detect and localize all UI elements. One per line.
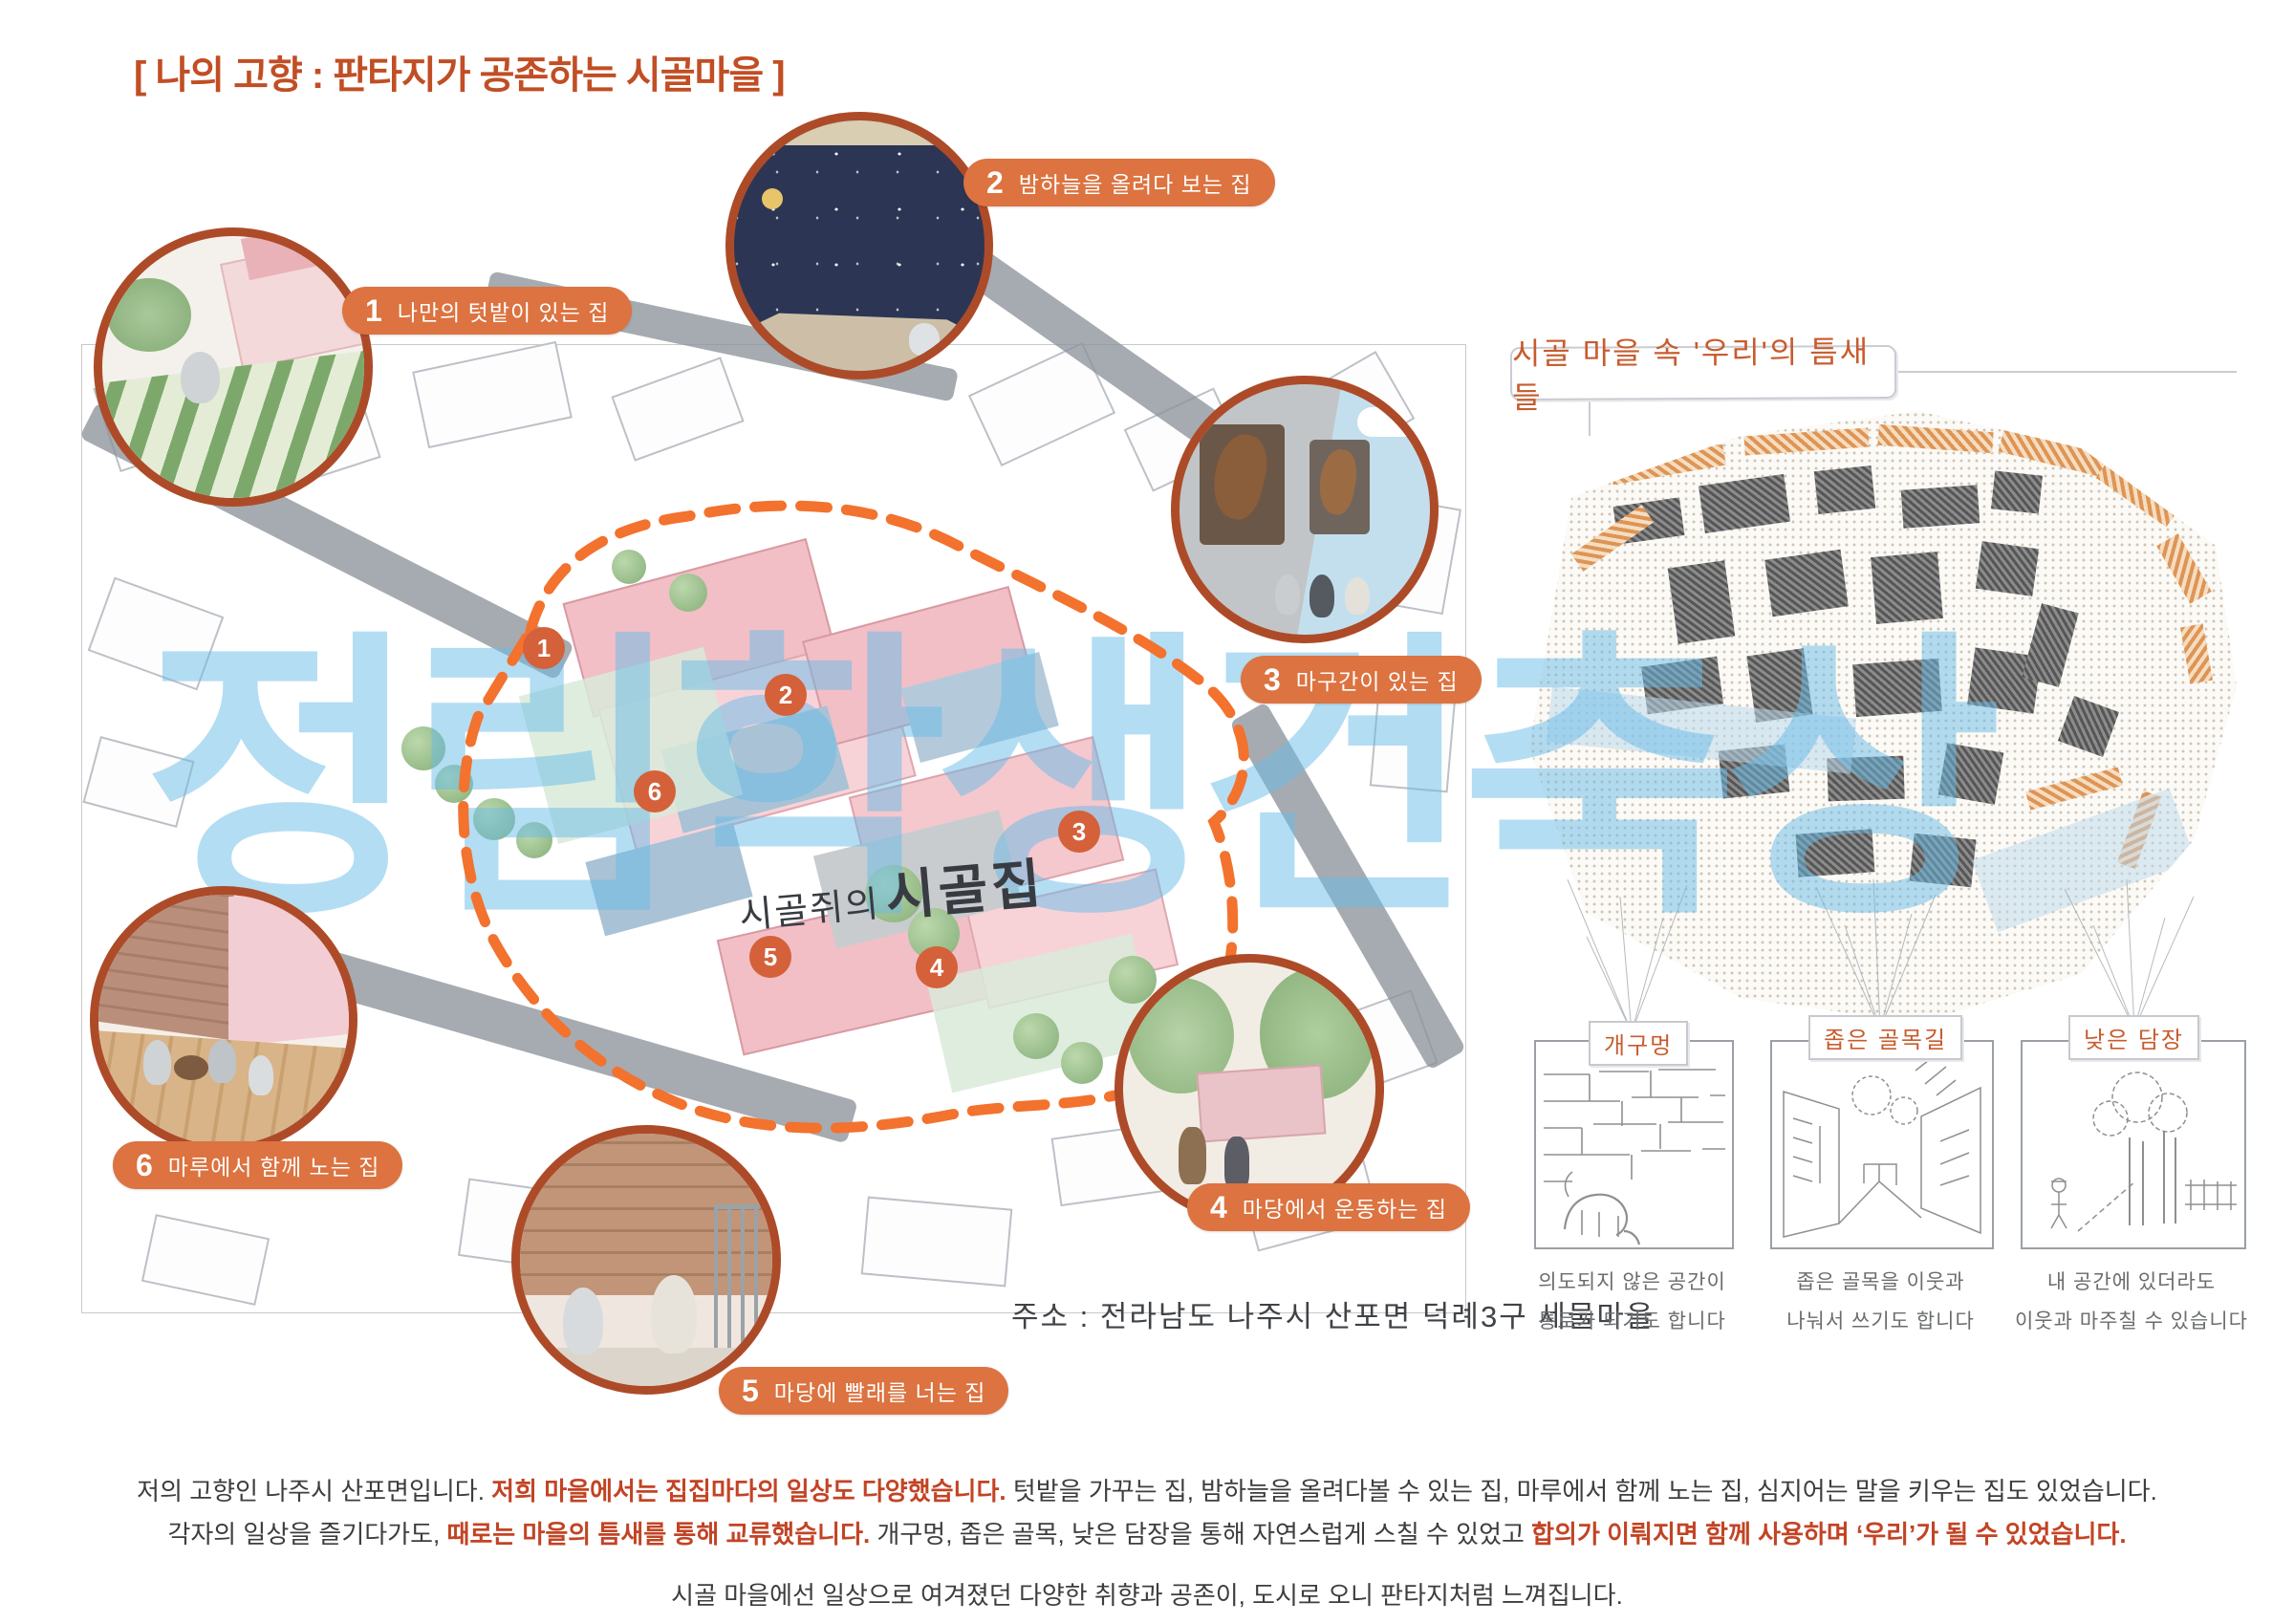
footer-text: 저의 고향인 나주시 산포면입니다. <box>137 1477 491 1505</box>
house-label-3: 3 마구간이 있는 집 <box>1241 656 1482 704</box>
plan-building <box>1699 474 1790 533</box>
house-number: 6 <box>136 1148 153 1183</box>
vignette-mouse <box>181 352 220 404</box>
tree <box>1061 1042 1103 1084</box>
tree <box>1013 1013 1059 1059</box>
vignette-laundry-house <box>511 1125 781 1395</box>
vignette-figure <box>1179 1127 1206 1185</box>
plan-building <box>1871 552 1943 624</box>
plan-building <box>1668 560 1736 644</box>
vignette-crop-rows <box>94 348 373 507</box>
house-label-4: 4 마당에서 운동하는 집 <box>1187 1183 1470 1231</box>
low-wall-sketch-drawing <box>2023 1042 2244 1247</box>
sketch-dog-hole <box>1534 1040 1734 1249</box>
footer-line-1: 저의 고향인 나주시 산포면입니다. 저희 마을에서는 집집마다의 일상도 다양… <box>0 1470 2294 1513</box>
caption-line: 나눠서 쓰기도 합니다 <box>1768 1303 1993 1342</box>
footer-text: 각자의 일상을 즐기다가도, <box>167 1520 446 1548</box>
vignette-maru-house <box>90 886 357 1154</box>
plan-gap-orange <box>1999 429 2107 477</box>
vignette-mouse <box>651 1275 697 1353</box>
sketch-narrow-alley <box>1770 1040 1994 1249</box>
map-marker-2: 2 <box>765 674 807 716</box>
plan-building <box>1814 466 1875 514</box>
plan-gap-orange <box>1877 424 1993 453</box>
sketch-caption-dog-hole: 의도되지 않은 공간이 통로가 되기도 합니다 <box>1520 1264 1744 1342</box>
village-name-big: 시골집 <box>883 853 1047 926</box>
tree <box>516 822 552 858</box>
house-name: 마당에 빨래를 너는 집 <box>774 1375 986 1407</box>
vignette-mouse <box>249 1055 273 1095</box>
plan-gap-orange <box>2180 623 2213 683</box>
sketch-caption-low-wall: 내 공간에 있더라도 이웃과 마주칠 수 있습니다 <box>2002 1264 2261 1342</box>
house-number: 3 <box>1264 662 1281 698</box>
house-name: 밤하늘을 올려다 보는 집 <box>1019 166 1252 199</box>
sketch-label-dog-hole: 개구멍 <box>1589 1021 1688 1066</box>
vignette-garden-house <box>94 227 373 507</box>
village-name-small: 시골쥐의 <box>738 884 882 937</box>
right-panel-title: 시골 마을 속 '우리'의 틈새들 <box>1510 345 1896 401</box>
house-number: 2 <box>986 165 1004 201</box>
vignette-mouse <box>563 1288 603 1355</box>
tree <box>473 798 515 840</box>
vignette-table <box>174 1055 209 1080</box>
map-marker-4: 4 <box>916 946 958 988</box>
house-number: 5 <box>742 1374 759 1409</box>
vignette-pink-wall <box>228 886 357 1047</box>
tree <box>401 726 445 770</box>
map-marker-3: 3 <box>1058 811 1100 853</box>
house-number: 1 <box>365 293 382 329</box>
caption-line: 내 공간에 있더라도 <box>2002 1264 2261 1303</box>
house-label-1: 1 나만의 텃밭이 있는 집 <box>342 287 632 335</box>
caption-line: 이웃과 마주칠 수 있습니다 <box>2002 1303 2261 1342</box>
plan-gap-orange <box>2025 767 2123 810</box>
vignette-mouse <box>909 323 939 356</box>
plan-to-sketch-connectors <box>1529 879 2256 1032</box>
sketch-label-low-wall: 낮은 담장 <box>2068 1015 2199 1060</box>
vignette-mouse <box>1275 574 1300 615</box>
plan-gap-orange <box>2096 458 2181 528</box>
footer-highlight: 저희 마을에서는 집집마다의 일상도 다양했습니다. <box>491 1477 1006 1505</box>
vignette-brick-wall <box>90 886 233 1040</box>
house-name: 마당에서 운동하는 집 <box>1243 1191 1447 1223</box>
vignette-bush <box>107 278 191 352</box>
tree <box>435 765 473 803</box>
plan-building <box>1796 829 1875 877</box>
footer-description: 저의 고향인 나주시 산포면입니다. 저희 마을에서는 집집마다의 일상도 다양… <box>0 1470 2294 1617</box>
caption-line: 통로가 되기도 합니다 <box>1520 1303 1744 1342</box>
narrow-alley-sketch-drawing <box>1772 1042 1992 1247</box>
vignette-balcony-rail <box>714 1204 760 1355</box>
house-name: 나만의 텃밭이 있는 집 <box>398 294 610 327</box>
plan-building <box>1764 550 1849 617</box>
vignette-mouse <box>208 1040 236 1083</box>
map-marker-6: 6 <box>634 770 676 812</box>
vignette-eave <box>734 120 985 145</box>
tree <box>669 574 707 612</box>
plan-building <box>1976 541 2039 596</box>
house-label-6: 6 마루에서 함께 노는 집 <box>113 1141 402 1189</box>
plan-building <box>1991 470 2043 513</box>
sketch-caption-narrow-alley: 좁은 골목을 이웃과 나눠서 쓰기도 합니다 <box>1768 1264 1993 1342</box>
vignette-cloud <box>1357 407 1418 437</box>
vignette-night-sky-house <box>725 112 993 379</box>
footer-text: 텃밭을 가꾸는 집, 밤하늘을 올려다볼 수 있는 집, 마루에서 함께 노는 … <box>1006 1477 2157 1505</box>
plan-building <box>1901 485 1980 528</box>
sketch-label-narrow-alley: 좁은 골목길 <box>1808 1015 1962 1060</box>
vignette-mouse <box>1345 577 1370 615</box>
dog-hole-sketch-drawing <box>1536 1042 1732 1247</box>
footer-text: 개구멍, 좁은 골목, 낮은 담장을 통해 자연스럽게 스칠 수 있었고 <box>870 1520 1531 1548</box>
plan-building <box>2058 696 2119 757</box>
presentation-board: [ 나의 고향 : 판타지가 공존하는 시골마을 ] <box>0 0 2294 1624</box>
plan-gap-orange <box>1610 444 1726 486</box>
footer-line-2: 각자의 일상을 즐기다가도, 때로는 마을의 틈새를 통해 교류했습니다. 개구… <box>0 1513 2294 1556</box>
plan-gap-orange <box>1743 427 1869 455</box>
tree <box>612 550 646 584</box>
house-name: 마루에서 함께 노는 집 <box>168 1149 380 1181</box>
plan-building <box>1938 743 2004 805</box>
house-label-5: 5 마당에 빨래를 너는 집 <box>719 1367 1008 1415</box>
vignette-moon <box>762 188 783 209</box>
plan-gap-orange <box>2156 533 2212 604</box>
vignette-figure <box>1224 1137 1249 1189</box>
vignette-stable-house <box>1171 376 1439 643</box>
plan-building <box>2022 603 2078 687</box>
footer-highlight: 때로는 마을의 틈새를 통해 교류했습니다. <box>446 1520 870 1548</box>
caption-line: 좁은 골목을 이웃과 <box>1768 1264 1993 1303</box>
building-block <box>861 1197 1013 1288</box>
caption-line: 의도되지 않은 공간이 <box>1520 1264 1744 1303</box>
page-title: [ 나의 고향 : 판타지가 공존하는 시골마을 ] <box>134 44 785 99</box>
footer-line-3: 시골 마을에선 일상으로 여겨졌던 다양한 취향과 공존이, 도시로 오니 판타… <box>0 1574 2294 1617</box>
house-name: 마구간이 있는 집 <box>1296 663 1459 696</box>
plan-building <box>1852 659 1942 717</box>
vignette-house-shape <box>1197 1064 1326 1142</box>
sketch-low-wall <box>2021 1040 2246 1249</box>
house-number: 4 <box>1210 1190 1227 1225</box>
footer-highlight: 합의가 이뤄지면 함께 사용하며 ‘우리’가 될 수 있었습니다. <box>1531 1520 2126 1548</box>
house-label-2: 2 밤하늘을 올려다 보는 집 <box>963 159 1275 206</box>
vignette-mouse <box>143 1040 171 1085</box>
vignette-mouse <box>1309 574 1334 617</box>
map-marker-1: 1 <box>523 627 565 669</box>
divider-line <box>1896 371 2237 373</box>
